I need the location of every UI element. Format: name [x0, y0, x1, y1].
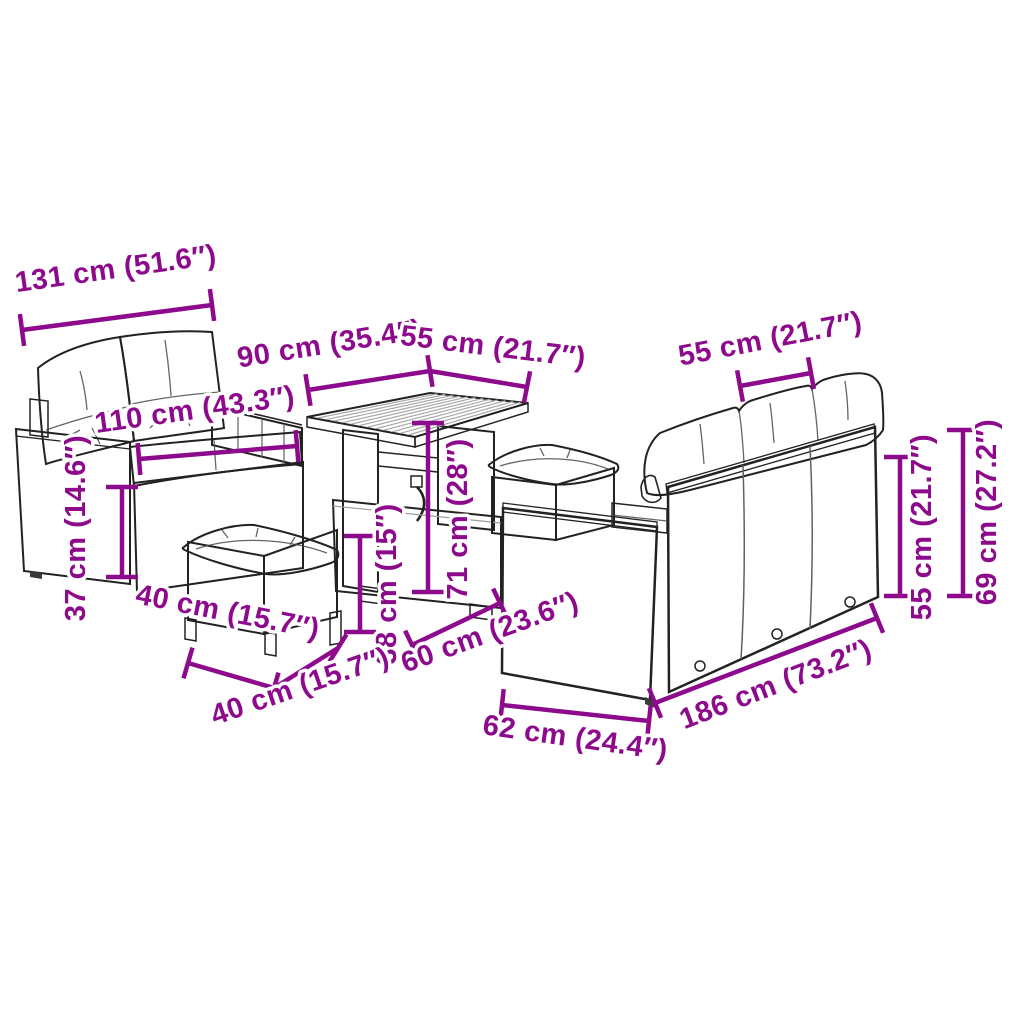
dim-line-sofa2-seat-height [106, 487, 138, 577]
dim-line-sofa3-cushion-width [737, 357, 814, 401]
stool1-leg-right [330, 611, 341, 645]
sofa3-drain-hole-3 [845, 597, 855, 607]
sofa3-drain-hole-1 [695, 661, 705, 671]
dim-label-stool-height: 38 cm (15″) [371, 503, 403, 664]
dim-label-sofa2-seat-height: 37 cm (14.6″) [60, 435, 92, 621]
table-strap-hook [417, 487, 424, 521]
dim-label-sofa3-back-height: 55 cm (21.7″) [906, 434, 938, 620]
dim-sofa3-total-height: 69 cm (27.2″) [947, 419, 1003, 605]
sofa3-cushion-flap [641, 475, 661, 502]
dim-sofa3-back-height: 55 cm (21.7″) [884, 434, 938, 620]
dim-sofa3-cushion-width: 55 cm (21.7″) [676, 306, 865, 402]
dim-label-sofa2-width: 131 cm (51.6″) [13, 239, 219, 299]
dim-label-sofa3-total-height: 69 cm (27.2″) [971, 419, 1003, 605]
furniture-dimension-diagram: 131 cm (51.6″) 110 cm (43.3″) 37 cm (14.… [0, 0, 1024, 1024]
dim-sofa2-seat-height: 37 cm (14.6″) [60, 435, 138, 621]
dim-label-stool-depth: 40 cm (15.7″) [207, 641, 394, 732]
table-umbrella-bracket [411, 476, 422, 487]
dim-label-table-height: 71 cm (28″) [442, 438, 474, 599]
dim-stool-height: 38 cm (15″) [344, 503, 403, 664]
dim-sofa2-inner-width: 110 cm (43.3″) [93, 380, 299, 475]
dim-label-stool-width: 40 cm (15.7″) [133, 579, 322, 646]
diagram-canvas: 131 cm (51.6″) 110 cm (43.3″) 37 cm (14.… [0, 0, 1024, 1024]
dining-table [307, 393, 528, 620]
footstool-right [489, 445, 619, 540]
dim-stool-depth: 40 cm (15.7″) [207, 634, 394, 732]
dim-sofa3-depth: 62 cm (24.4″) [481, 689, 670, 767]
dim-label-sofa2-inner-width: 110 cm (43.3″) [93, 380, 297, 440]
dim-label-table-length: 90 cm (35.4″) [235, 314, 424, 375]
sofa2-backrest-posts [238, 413, 284, 462]
dim-sofa2-width: 131 cm (51.6″) [13, 239, 219, 346]
dim-label-sofa3-cushion-width: 55 cm (21.7″) [676, 306, 865, 373]
dim-sofa3-length: 186 cm (73.2″) [649, 603, 883, 736]
stool2-box-side [556, 468, 614, 540]
sofa3-drain-hole-2 [772, 629, 782, 639]
sofa3-back-dividers [741, 446, 812, 659]
